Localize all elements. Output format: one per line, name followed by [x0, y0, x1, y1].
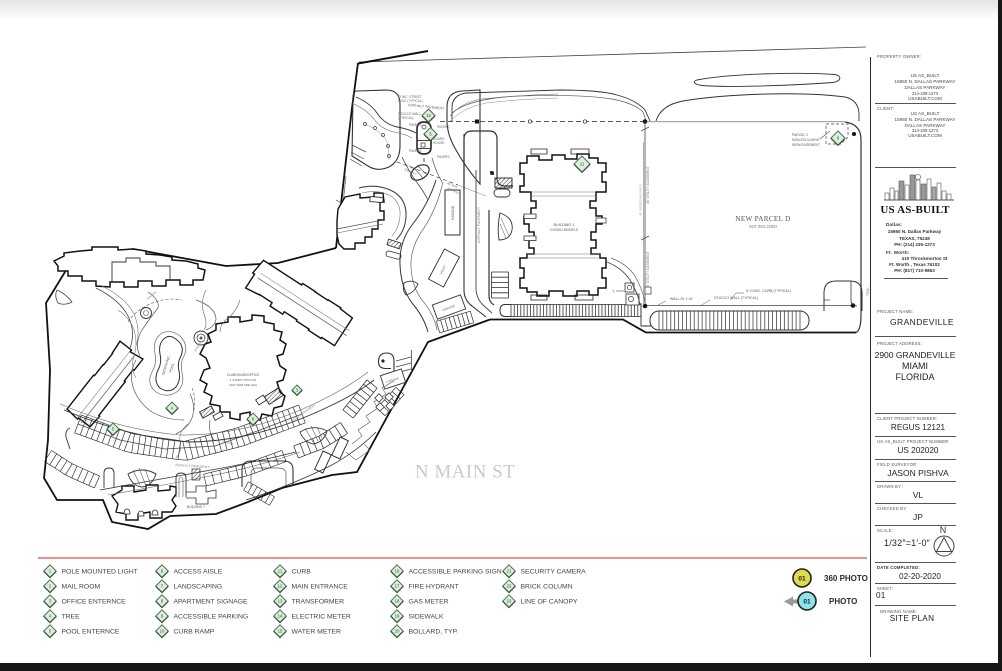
svg-text:ACCESS AISLE: ACCESS AISLE — [174, 569, 223, 576]
svg-text:LANDSCAPING: LANDSCAPING — [174, 584, 223, 591]
svg-text:15: 15 — [278, 629, 283, 634]
svg-text:CURB: CURB — [292, 569, 312, 576]
svg-text:APARTMENT SIGNAGE: APARTMENT SIGNAGE — [174, 599, 248, 606]
svg-text:OFFICE ENTERNCE: OFFICE ENTERNCE — [62, 599, 127, 606]
svg-text:BRICK COLUMN: BRICK COLUMN — [521, 584, 573, 591]
svg-text:17: 17 — [395, 584, 400, 589]
svg-text:21: 21 — [507, 569, 512, 574]
svg-text:MAIL ROOM: MAIL ROOM — [62, 584, 101, 591]
svg-text:11: 11 — [278, 569, 283, 574]
svg-text:PHOTO: PHOTO — [829, 597, 857, 606]
svg-text:01: 01 — [798, 576, 806, 583]
svg-text:WATER METER: WATER METER — [292, 629, 342, 636]
svg-text:POLE MOUNTED LIGHT: POLE MOUNTED LIGHT — [62, 569, 138, 576]
svg-text:ELECTRIC METER: ELECTRIC METER — [292, 614, 351, 621]
svg-text:ACCESSIBLE PARKING SIGN: ACCESSIBLE PARKING SIGN — [409, 569, 502, 576]
svg-text:GAS METER: GAS METER — [409, 599, 449, 606]
svg-text:TRANSFORMER: TRANSFORMER — [292, 599, 345, 606]
svg-text:ACCESSIBLE PARKING: ACCESSIBLE PARKING — [174, 614, 249, 621]
svg-text:16: 16 — [395, 569, 400, 574]
svg-text:MAIN ENTRANCE: MAIN ENTRANCE — [292, 584, 349, 591]
svg-text:SIDEWALK: SIDEWALK — [409, 614, 444, 621]
svg-text:10: 10 — [160, 629, 165, 634]
svg-text:01: 01 — [803, 599, 811, 606]
svg-text:14: 14 — [278, 614, 283, 619]
svg-text:23: 23 — [507, 599, 512, 604]
svg-text:FIRE HYDRANT: FIRE HYDRANT — [409, 584, 459, 591]
svg-text:19: 19 — [395, 614, 400, 619]
svg-text:CURB RAMP: CURB RAMP — [174, 629, 215, 636]
svg-text:13: 13 — [278, 599, 283, 604]
svg-text:BOLLARD, TYP.: BOLLARD, TYP. — [409, 629, 459, 636]
svg-text:22: 22 — [507, 584, 512, 589]
svg-text:TREE: TREE — [62, 614, 81, 621]
svg-text:360 PHOTO: 360 PHOTO — [824, 574, 868, 583]
svg-text:12: 12 — [278, 584, 283, 589]
svg-text:LINE OF CANOPY: LINE OF CANOPY — [521, 599, 578, 606]
svg-text:SECURITY CAMERA: SECURITY CAMERA — [521, 569, 587, 576]
svg-text:POOL ENTERNCE: POOL ENTERNCE — [62, 629, 120, 636]
svg-text:18: 18 — [395, 599, 400, 604]
svg-text:20: 20 — [395, 629, 400, 634]
